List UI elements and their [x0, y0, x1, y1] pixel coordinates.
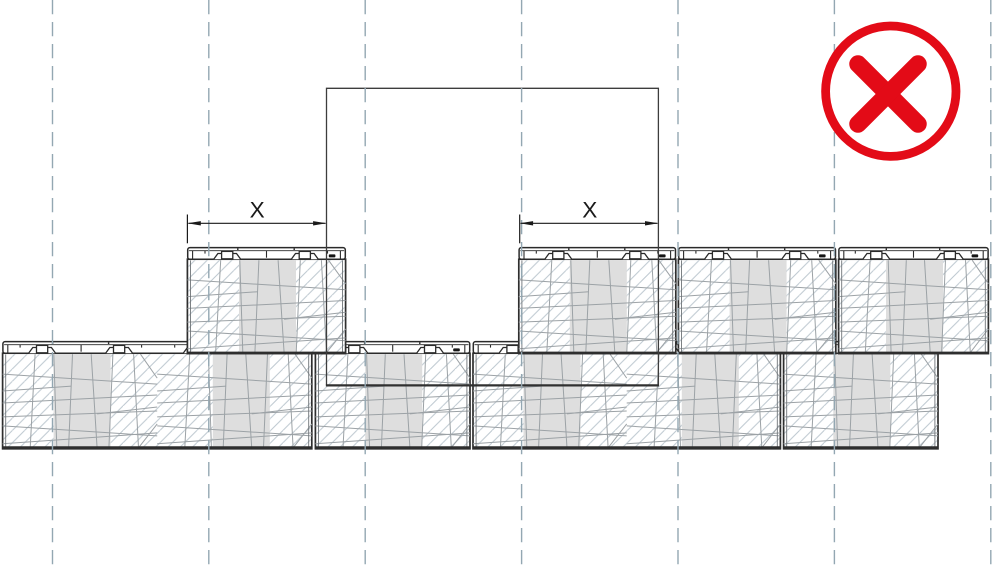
- svg-text:X: X: [582, 198, 597, 223]
- svg-text:X: X: [250, 198, 265, 223]
